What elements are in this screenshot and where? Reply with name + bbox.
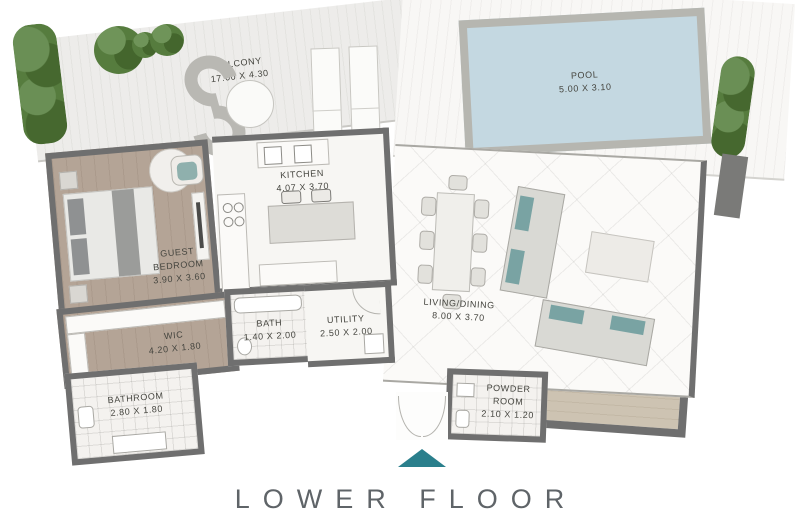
sink (294, 145, 313, 164)
armchair (170, 154, 204, 187)
entry-doorway (396, 392, 448, 440)
sofa (500, 186, 566, 299)
utility-label: UTILITY 2.50 X 2.00 (305, 311, 386, 341)
bathtub (234, 294, 303, 314)
room-dims: 1.40 X 2.00 (232, 328, 308, 345)
room-bathroom: BATHROOM 2.80 X 1.80 (64, 362, 205, 465)
dining-chair (448, 175, 468, 191)
sink (456, 383, 474, 398)
room-bath: BATH 1.40 X 2.00 (224, 285, 315, 366)
sink (264, 146, 283, 165)
room-guest-bedroom: GUEST BEDROOM 3.90 X 3.60 (45, 139, 222, 319)
dining-chair (419, 230, 435, 250)
sun-lounger (348, 46, 380, 137)
nightstand (59, 171, 79, 191)
kitchen-counter (256, 139, 329, 169)
dining-chair (421, 196, 437, 216)
sofa (535, 299, 656, 366)
bath-label: BATH 1.40 X 2.00 (232, 315, 308, 345)
dining-chair (417, 264, 433, 284)
sun-lounger (310, 48, 342, 139)
room-powder-room: POWDER ROOM 2.10 X 1.20 (445, 368, 548, 442)
room-dims: 5.00 X 3.10 (559, 81, 612, 97)
dining-table (432, 192, 475, 292)
coffee-table (585, 231, 655, 282)
nightstand (69, 284, 89, 304)
outdoor-round-table (226, 80, 274, 128)
room-living-dining: LIVING/DINING 8.00 X 3.70 (383, 144, 707, 398)
door-swing (423, 396, 446, 437)
dining-chair (470, 267, 486, 287)
vanity (112, 431, 167, 454)
pool-label: POOL 5.00 X 3.10 (558, 68, 612, 97)
entrance-arrow-icon (398, 449, 446, 467)
wic-label: WIC 4.20 X 1.80 (123, 324, 225, 360)
palm-plant-icon (150, 24, 184, 56)
room-utility: UTILITY 2.50 X 2.00 (304, 281, 395, 367)
guest-bedroom-label: GUEST BEDROOM 3.90 X 3.60 (138, 243, 219, 289)
kitchen-counter (259, 260, 338, 286)
powder-room-label: POWDER ROOM 2.10 X 1.20 (475, 381, 540, 422)
dining-chair (472, 233, 488, 253)
kitchen-island (268, 201, 356, 243)
dining-chair (474, 199, 490, 219)
room-pool: POOL 5.00 X 3.10 (459, 8, 712, 157)
living-dining-label: LIVING/DINING 8.00 X 3.70 (398, 294, 519, 326)
floor-title: LOWER FLOOR (0, 484, 812, 515)
room-name: POWDER ROOM (476, 381, 541, 409)
bathroom-label: BATHROOM 2.80 X 1.80 (90, 388, 182, 422)
room-kitchen: KITCHEN 4.07 X 3.70 (212, 127, 397, 294)
kitchen-counter (217, 193, 250, 294)
toilet (455, 410, 470, 428)
door-swing (398, 396, 421, 437)
kitchen-label: KITCHEN 4.07 X 3.70 (242, 165, 363, 197)
floor-plan-canvas: BALCONY 17.00 X 4.30 POOL 5.00 X 3.10 (0, 0, 812, 521)
room-dims: 2.10 X 1.20 (475, 407, 539, 422)
